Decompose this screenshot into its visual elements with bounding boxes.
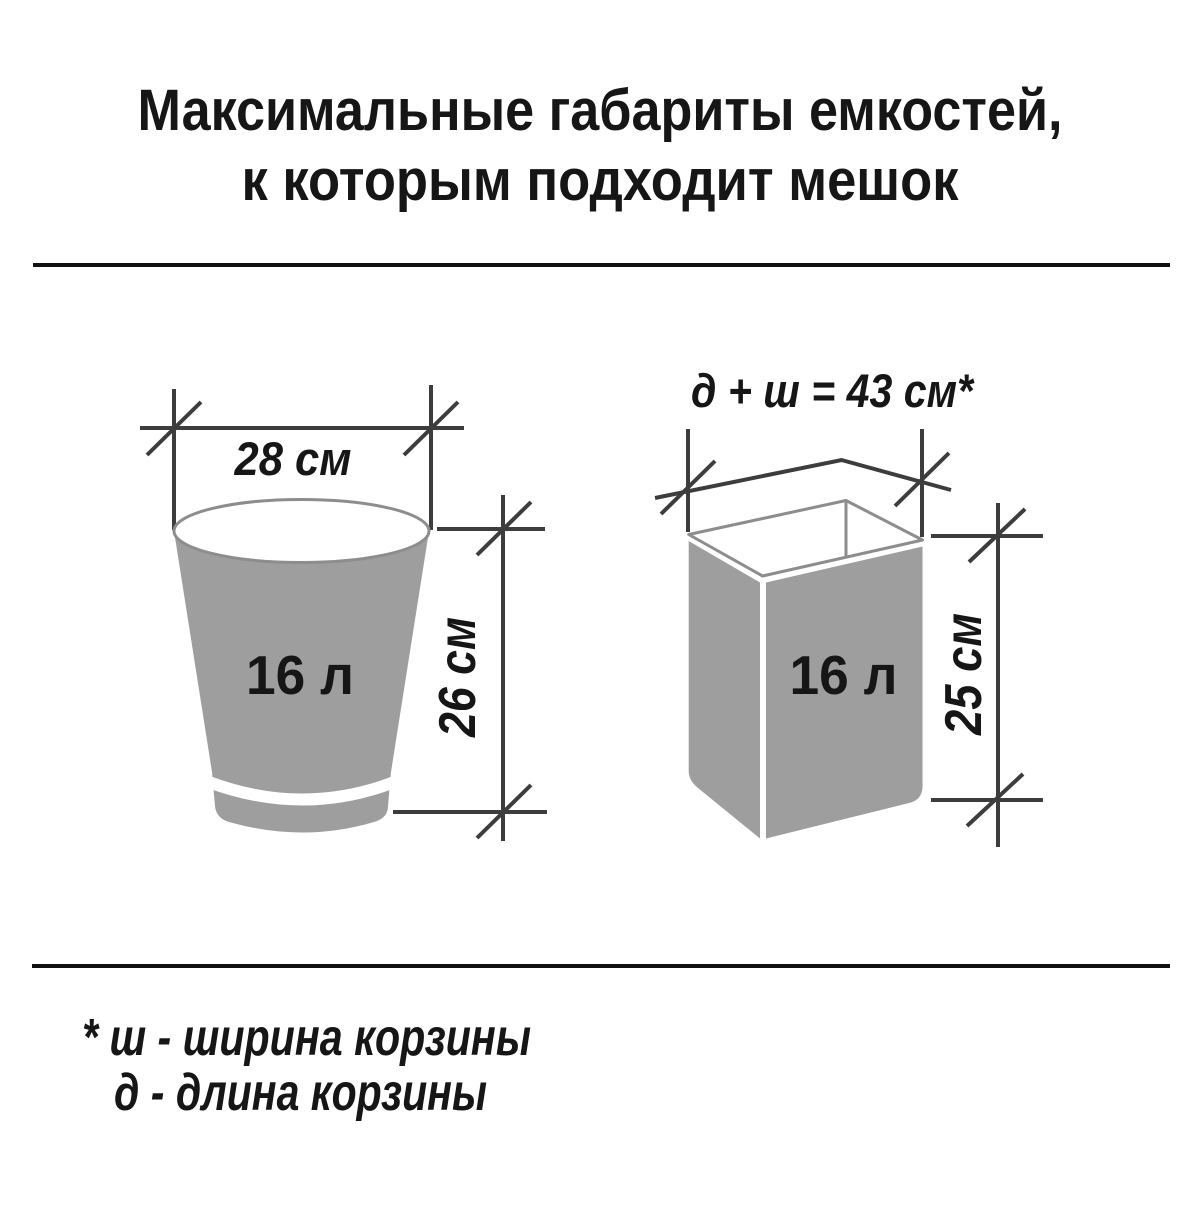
svg-text:26 см: 26 см	[429, 617, 487, 738]
svg-text:25 см: 25 см	[935, 613, 993, 736]
svg-text:28 см: 28 см	[234, 432, 352, 485]
svg-text:д + ш = 43 см*: д + ш = 43 см*	[691, 364, 975, 417]
svg-text:16 л: 16 л	[246, 644, 354, 706]
svg-text:к которым подходит мешок: к которым подходит мешок	[242, 148, 960, 213]
svg-text:* ш - ширина корзины: * ш - ширина корзины	[82, 1009, 531, 1067]
svg-text:д - длина корзины: д - длина корзины	[114, 1064, 487, 1122]
svg-text:16 л: 16 л	[790, 644, 898, 706]
svg-text:Максимальные габариты емкостей: Максимальные габариты емкостей,	[138, 78, 1063, 143]
